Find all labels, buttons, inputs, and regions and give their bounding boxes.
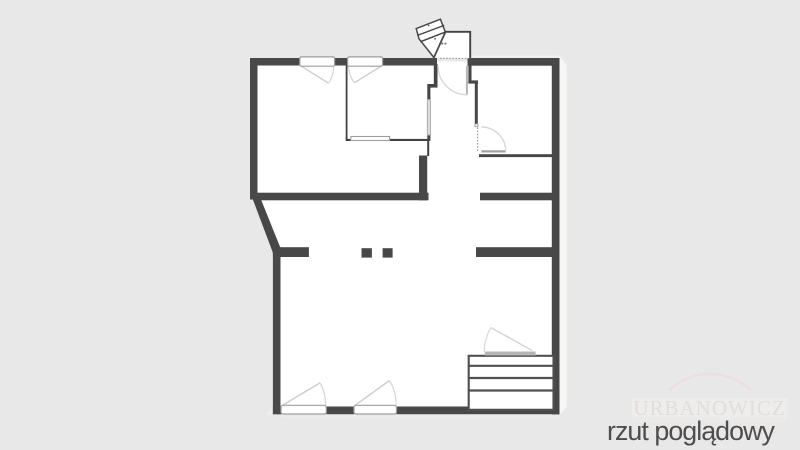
svg-text:rzut poglądowy: rzut poglądowy — [607, 416, 775, 446]
